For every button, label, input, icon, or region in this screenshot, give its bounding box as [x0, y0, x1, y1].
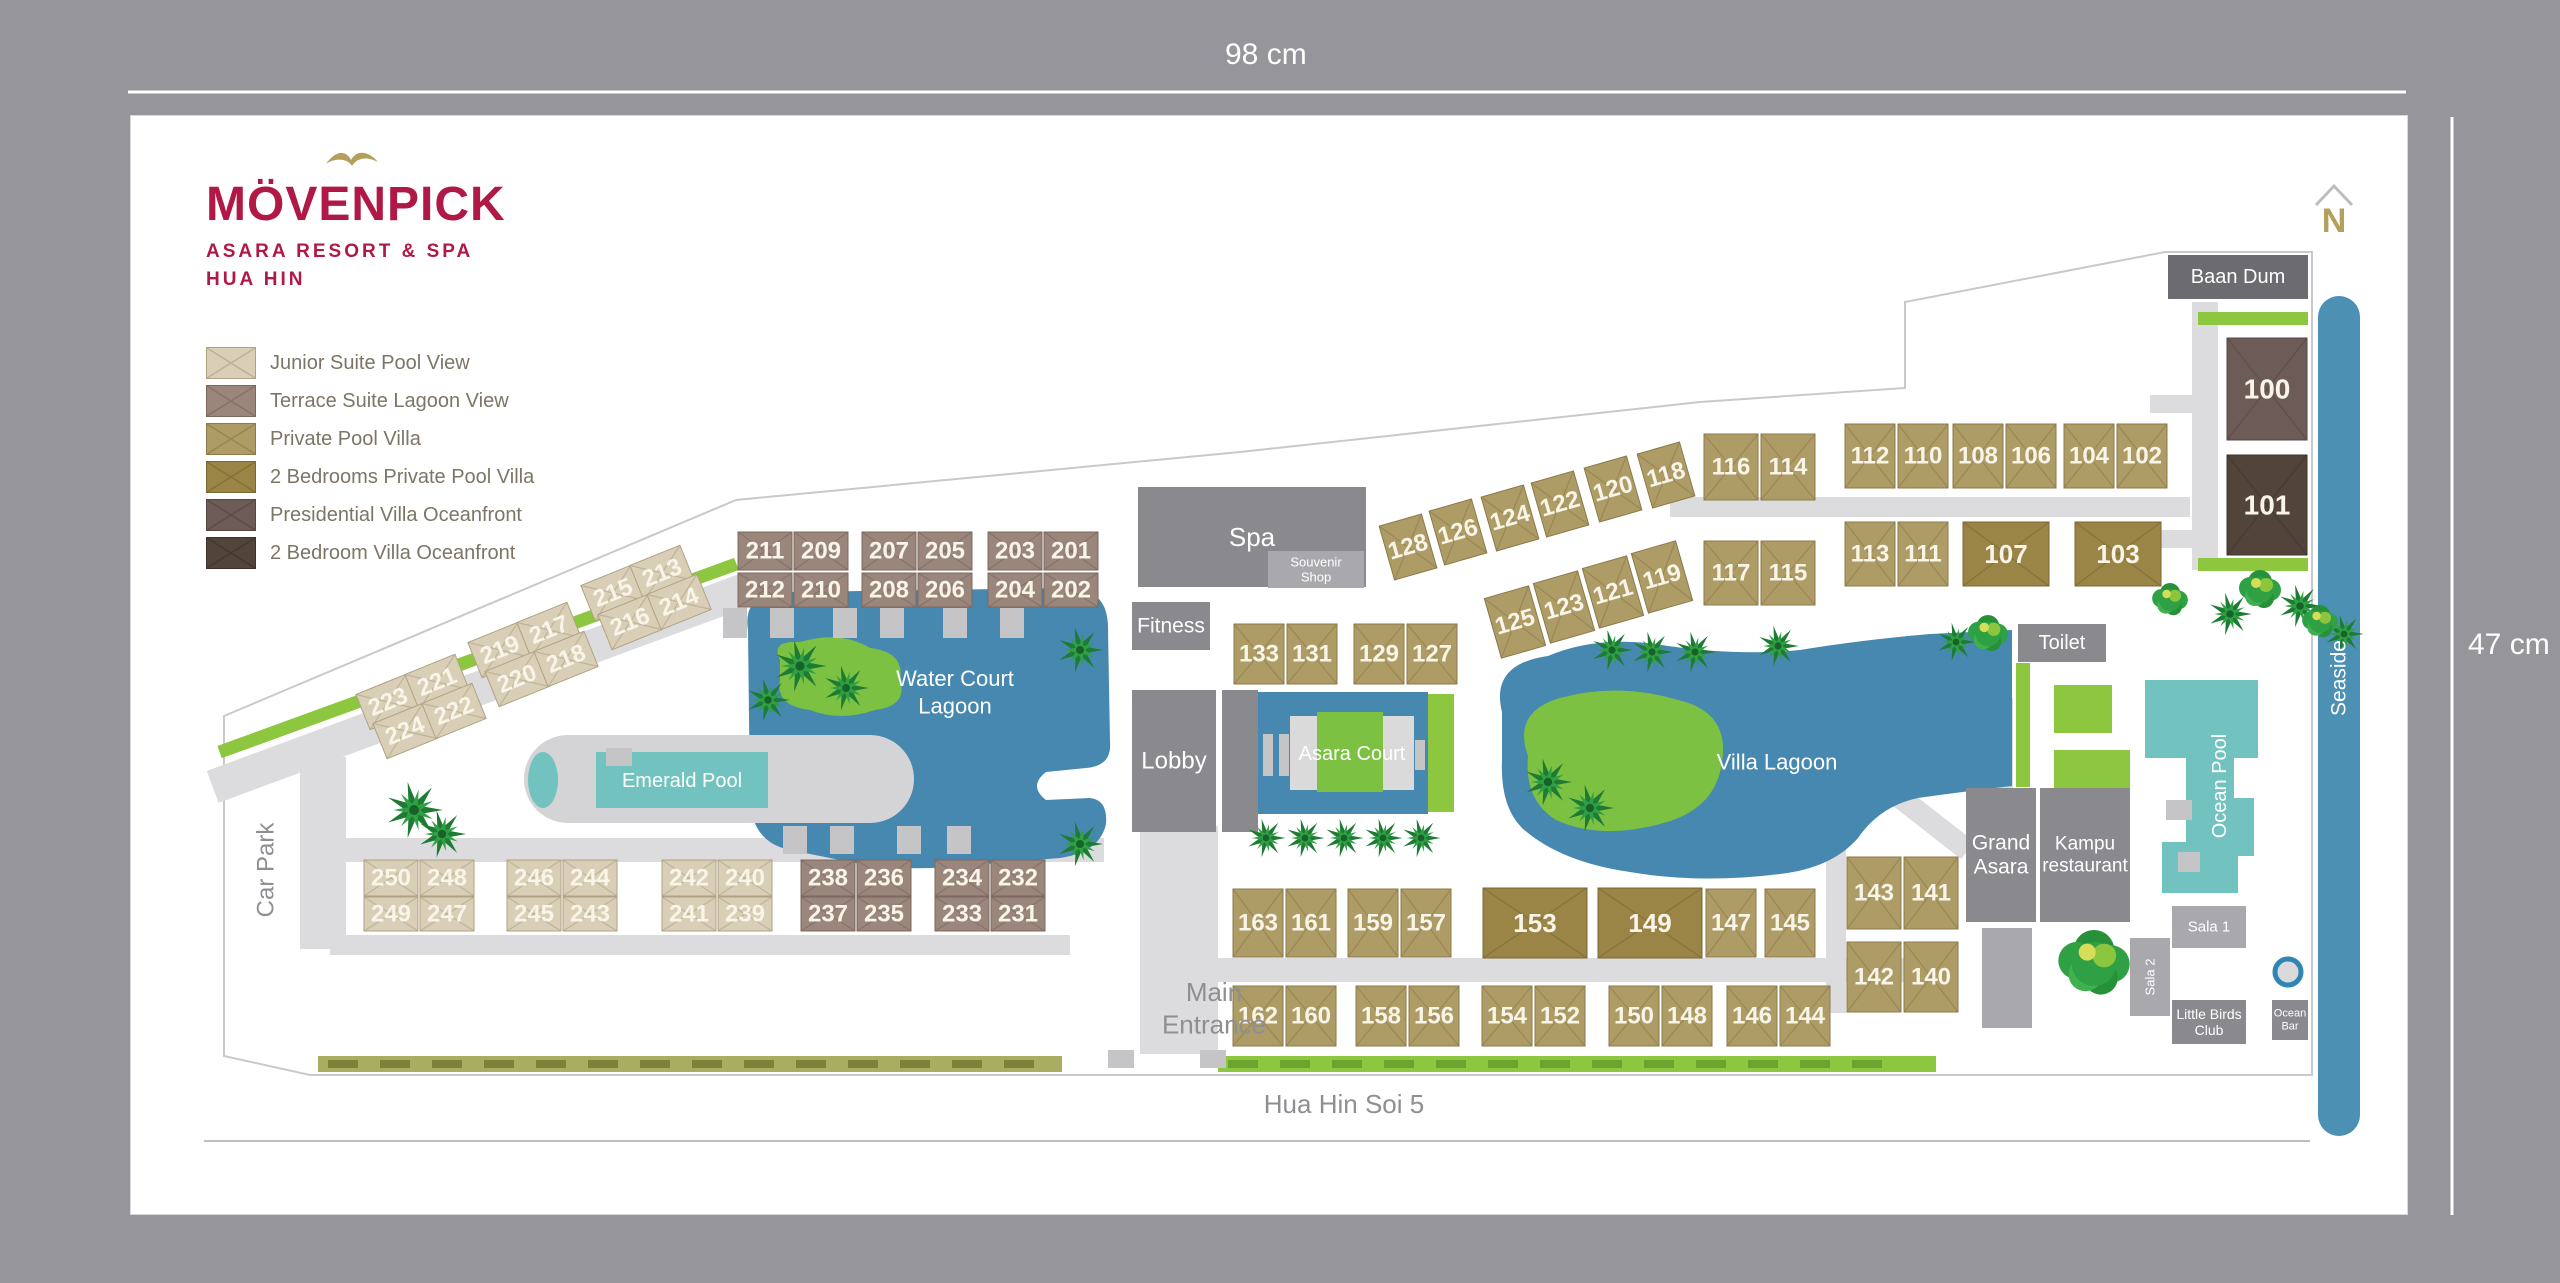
room-158: 158 [1356, 986, 1406, 1046]
room-237: 237 [801, 897, 855, 931]
svg-text:Grand: Grand [1972, 831, 2030, 854]
svg-text:148: 148 [1667, 1003, 1707, 1030]
svg-text:100: 100 [2244, 374, 2291, 405]
room-129: 129 [1354, 624, 1404, 684]
svg-text:112: 112 [1851, 443, 1890, 470]
room-246: 246 [507, 860, 561, 896]
svg-text:Ocean: Ocean [2274, 1008, 2306, 1020]
room-100: 100 [2227, 338, 2307, 440]
svg-text:244: 244 [570, 865, 611, 892]
legend-swatch-icon [206, 499, 256, 531]
svg-text:202: 202 [1051, 577, 1091, 604]
room-144: 144 [1780, 986, 1830, 1046]
pier [606, 748, 632, 766]
compass-north: N [2316, 186, 2352, 240]
lawn [2054, 685, 2112, 733]
asara-court-label: Asara Court [1299, 743, 1406, 765]
svg-text:140: 140 [1911, 964, 1951, 991]
svg-text:103: 103 [2096, 539, 2139, 569]
walkway [2150, 395, 2194, 413]
room-124: 124 [1481, 485, 1539, 551]
movenpick-logo: MÖVENPICK ASARA RESORT & SPA HUA HIN [206, 148, 506, 291]
room-160: 160 [1286, 986, 1336, 1046]
room-147: 147 [1706, 889, 1756, 957]
legend-swatch-icon [206, 385, 256, 417]
room-118: 118 [1637, 442, 1695, 508]
legend-item: Presidential Villa Oceanfront [206, 500, 534, 530]
svg-text:149: 149 [1628, 908, 1671, 938]
room-207: 207 [862, 532, 916, 570]
svg-text:142: 142 [1854, 964, 1894, 991]
building-little-birds-club: Little BirdsClub [2172, 1000, 2246, 1044]
svg-text:108: 108 [1958, 443, 1998, 470]
svg-text:127: 127 [1412, 641, 1452, 668]
pier [1200, 1050, 1226, 1068]
legend-swatch-icon [206, 461, 256, 493]
svg-text:Hua Hin Soi 5: Hua Hin Soi 5 [1264, 1089, 1424, 1119]
svg-text:Emerald Pool: Emerald Pool [622, 770, 742, 792]
svg-text:147: 147 [1711, 910, 1751, 937]
svg-text:245: 245 [514, 901, 554, 928]
svg-text:129: 129 [1359, 641, 1399, 668]
svg-text:Lobby: Lobby [1141, 748, 1206, 775]
room-234: 234 [935, 860, 989, 896]
svg-text:Sala 2: Sala 2 [2143, 959, 2158, 996]
svg-text:249: 249 [371, 901, 411, 928]
room-163: 163 [1233, 889, 1283, 957]
lawn [2198, 312, 2308, 325]
svg-text:247: 247 [427, 901, 467, 928]
room-201: 201 [1044, 532, 1098, 570]
svg-text:206: 206 [925, 577, 965, 604]
lawn [1428, 694, 1454, 812]
room-125: 125 [1484, 586, 1545, 658]
room-152: 152 [1535, 986, 1585, 1046]
svg-text:207: 207 [869, 538, 909, 565]
room-149: 149 [1598, 888, 1702, 958]
svg-text:Ocean Pool: Ocean Pool [2209, 734, 2231, 839]
svg-text:236: 236 [864, 865, 904, 892]
svg-text:104: 104 [2069, 443, 2110, 470]
svg-text:212: 212 [745, 577, 785, 604]
svg-text:Seaside: Seaside [2328, 640, 2351, 716]
palm-tree-icon [1365, 819, 1402, 857]
seagull-icon [324, 148, 380, 174]
room-145: 145 [1765, 889, 1815, 957]
round-tree-icon [2058, 930, 2129, 995]
svg-text:160: 160 [1291, 1003, 1331, 1030]
svg-text:111: 111 [1904, 541, 1941, 568]
svg-text:Car Park: Car Park [253, 822, 280, 918]
room-126: 126 [1429, 499, 1487, 565]
svg-text:204: 204 [995, 577, 1036, 604]
svg-text:restaurant: restaurant [2042, 855, 2128, 876]
room-248: 248 [420, 860, 474, 896]
svg-text:117: 117 [1712, 560, 1751, 587]
room-239: 239 [718, 897, 772, 931]
svg-text:161: 161 [1291, 910, 1331, 937]
legend-label: Terrace Suite Lagoon View [270, 390, 509, 413]
legend-item: Private Pool Villa [206, 424, 534, 454]
svg-text:106: 106 [2011, 443, 2051, 470]
room-131: 131 [1287, 624, 1337, 684]
room-235: 235 [857, 897, 911, 931]
svg-text:Asara: Asara [1974, 856, 2029, 879]
svg-text:Water Court: Water Court [896, 666, 1014, 691]
svg-text:238: 238 [808, 865, 848, 892]
svg-text:115: 115 [1769, 560, 1808, 587]
height-dimension-label: 47 cm [2468, 628, 2550, 662]
room-103: 103 [2075, 522, 2161, 586]
svg-text:Lagoon: Lagoon [918, 693, 991, 718]
room-110: 110 [1898, 424, 1948, 488]
svg-text:232: 232 [998, 865, 1038, 892]
building-baan-dum: Baan Dum [2168, 255, 2308, 299]
room-143: 143 [1847, 857, 1901, 929]
building-grand-asara: GrandAsara [1966, 788, 2036, 922]
svg-text:158: 158 [1361, 1003, 1401, 1030]
resort-map-page: { "page":{"bg":"#95959B","canvas_bg":"#F… [0, 0, 2560, 1283]
room-154: 154 [1482, 986, 1532, 1046]
room-205: 205 [918, 532, 972, 570]
room-209: 209 [794, 532, 848, 570]
legend-item: Junior Suite Pool View [206, 348, 534, 378]
palm-tree-icon [1287, 819, 1324, 857]
emerald-pool-label: Emerald Pool [622, 770, 742, 792]
room-102: 102 [2117, 424, 2167, 488]
svg-text:Baan Dum: Baan Dum [2191, 266, 2286, 288]
svg-text:Main: Main [1186, 977, 1242, 1007]
pier [723, 608, 747, 638]
svg-text:131: 131 [1292, 641, 1332, 668]
svg-text:242: 242 [669, 865, 709, 892]
building-lobby: Lobby [1132, 690, 1216, 832]
room-161: 161 [1286, 889, 1336, 957]
svg-text:Asara Court: Asara Court [1299, 743, 1406, 765]
svg-text:102: 102 [2122, 443, 2162, 470]
room-116: 116 [1704, 434, 1758, 500]
pier [833, 608, 857, 638]
round-tree-icon [2152, 583, 2188, 615]
room-113: 113 [1845, 522, 1895, 586]
lawn [2198, 558, 2308, 571]
svg-text:Souvenir: Souvenir [1290, 555, 1342, 570]
villa-lagoon-label: Villa Lagoon [1717, 750, 1838, 775]
room-120: 120 [1584, 456, 1642, 522]
pier [2178, 852, 2200, 872]
svg-text:Sala 1: Sala 1 [2188, 919, 2231, 936]
room-112: 112 [1845, 424, 1895, 488]
room-247: 247 [420, 897, 474, 931]
room-240: 240 [718, 860, 772, 896]
room-233: 233 [935, 897, 989, 931]
street-label: Hua Hin Soi 5 [1264, 1089, 1424, 1119]
svg-text:210: 210 [801, 577, 841, 604]
pier [1000, 608, 1024, 638]
brand-subtitle: ASARA RESORT & SPA [206, 241, 506, 263]
ocean-pool [2145, 680, 2258, 893]
svg-text:116: 116 [1712, 454, 1751, 481]
svg-text:246: 246 [514, 865, 554, 892]
svg-text:233: 233 [942, 901, 982, 928]
room-212: 212 [738, 573, 792, 607]
pier [1279, 734, 1289, 776]
pier [947, 826, 971, 854]
palm-tree-icon [1403, 819, 1440, 857]
room-208: 208 [862, 573, 916, 607]
building-sala-1: Sala 1 [2172, 906, 2246, 948]
room-211: 211 [738, 532, 792, 570]
svg-text:241: 241 [669, 901, 709, 928]
pier [1415, 740, 1425, 770]
brand-city: HUA HIN [206, 269, 506, 291]
svg-text:133: 133 [1239, 641, 1279, 668]
pier [783, 826, 807, 854]
svg-text:107: 107 [1984, 539, 2027, 569]
pier [943, 608, 967, 638]
room-250: 250 [364, 860, 418, 896]
svg-text:101: 101 [2244, 490, 2291, 521]
svg-text:Villa Lagoon: Villa Lagoon [1717, 750, 1838, 775]
svg-text:211: 211 [746, 538, 785, 565]
svg-text:239: 239 [725, 901, 765, 928]
room-210: 210 [794, 573, 848, 607]
room-119: 119 [1631, 541, 1692, 613]
building-kampu-restaurant: Kampurestaurant [2040, 788, 2130, 922]
svg-text:143: 143 [1854, 880, 1894, 907]
room-114: 114 [1761, 434, 1815, 500]
svg-text:201: 201 [1051, 538, 1091, 565]
svg-text:Shop: Shop [1301, 569, 1331, 584]
svg-text:231: 231 [998, 901, 1038, 928]
legend-label: Junior Suite Pool View [270, 352, 470, 375]
svg-text:110: 110 [1904, 443, 1943, 470]
room-203: 203 [988, 532, 1042, 570]
room-106: 106 [2006, 424, 2056, 488]
building-service-building [1982, 928, 2032, 1028]
brand-title: MÖVENPICK [206, 181, 506, 229]
svg-text:248: 248 [427, 865, 467, 892]
room-238: 238 [801, 860, 855, 896]
pier [830, 826, 854, 854]
room-249: 249 [364, 897, 418, 931]
building-ocean-bar: OceanBar [2272, 1000, 2308, 1040]
hot-tub [2275, 959, 2301, 985]
svg-text:208: 208 [869, 577, 909, 604]
width-dimension-label: 98 cm [1225, 38, 1307, 72]
pier [897, 826, 921, 854]
room-101: 101 [2227, 455, 2307, 555]
svg-text:Little Birds: Little Birds [2176, 1006, 2241, 1022]
building-fitness: Fitness [1132, 602, 1210, 650]
room-202: 202 [1044, 573, 1098, 607]
pier [1263, 734, 1273, 776]
room-111: 111 [1898, 522, 1948, 586]
room-153: 153 [1483, 888, 1587, 958]
walkway [1210, 958, 1918, 982]
room-231: 231 [991, 897, 1045, 931]
svg-text:209: 209 [801, 538, 841, 565]
room-104: 104 [2064, 424, 2114, 488]
svg-text:Kampu: Kampu [2055, 834, 2115, 855]
legend-item: 2 Bedroom Villa Oceanfront [206, 538, 534, 568]
legend-item: Terrace Suite Lagoon View [206, 386, 534, 416]
room-133: 133 [1234, 624, 1284, 684]
room-121: 121 [1582, 556, 1643, 628]
round-tree-icon [2239, 570, 2281, 608]
svg-text:205: 205 [925, 538, 965, 565]
room-150: 150 [1609, 986, 1659, 1046]
legend-label: 2 Bedrooms Private Pool Villa [270, 466, 534, 489]
seaside-label: Seaside [2328, 640, 2351, 716]
emerald-spa-tub [528, 752, 558, 808]
room-243: 243 [563, 897, 617, 931]
car-park-label: Car Park [253, 822, 280, 918]
room-242: 242 [662, 860, 716, 896]
room-142: 142 [1847, 942, 1901, 1012]
svg-text:234: 234 [942, 865, 983, 892]
legend-item: 2 Bedrooms Private Pool Villa [206, 462, 534, 492]
building-sala-2: Sala 2 [2130, 938, 2170, 1016]
room-236: 236 [857, 860, 911, 896]
room-146: 146 [1727, 986, 1777, 1046]
ocean-pool-label: Ocean Pool [2209, 734, 2231, 839]
svg-text:Bar: Bar [2281, 1020, 2298, 1032]
pier [2166, 800, 2192, 820]
room-241: 241 [662, 897, 716, 931]
room-244: 244 [563, 860, 617, 896]
svg-text:153: 153 [1513, 908, 1556, 938]
pier [880, 608, 904, 638]
room-107: 107 [1963, 522, 2049, 586]
svg-text:235: 235 [864, 901, 904, 928]
legend-label: Presidential Villa Oceanfront [270, 504, 522, 527]
svg-text:N: N [2322, 202, 2347, 240]
svg-text:113: 113 [1851, 541, 1890, 568]
svg-text:159: 159 [1353, 910, 1393, 937]
walkway [2192, 302, 2218, 570]
legend-label: Private Pool Villa [270, 428, 421, 451]
room-159: 159 [1348, 889, 1398, 957]
svg-text:243: 243 [570, 901, 610, 928]
svg-text:157: 157 [1406, 910, 1446, 937]
svg-text:150: 150 [1614, 1003, 1654, 1030]
svg-text:156: 156 [1414, 1003, 1454, 1030]
svg-text:Toilet: Toilet [2039, 632, 2086, 654]
legend-swatch-icon [206, 537, 256, 569]
room-245: 245 [507, 897, 561, 931]
svg-text:Fitness: Fitness [1137, 615, 1205, 638]
svg-text:141: 141 [1911, 880, 1951, 907]
hedge [318, 1056, 1062, 1072]
svg-text:203: 203 [995, 538, 1035, 565]
svg-text:145: 145 [1770, 910, 1810, 937]
svg-text:152: 152 [1540, 1003, 1580, 1030]
svg-text:114: 114 [1769, 454, 1808, 481]
pier [1108, 1050, 1134, 1068]
building-toilet: Toilet [2018, 624, 2106, 662]
pier [770, 608, 794, 638]
legend-label: 2 Bedroom Villa Oceanfront [270, 542, 515, 565]
room-115: 115 [1761, 541, 1815, 605]
svg-text:163: 163 [1238, 910, 1278, 937]
room-232: 232 [991, 860, 1045, 896]
room-206: 206 [918, 573, 972, 607]
walkway [330, 935, 1070, 955]
room-148: 148 [1662, 986, 1712, 1046]
lawn [2016, 663, 2030, 787]
room-type-legend: Junior Suite Pool View Terrace Suite Lag… [206, 348, 534, 576]
room-108: 108 [1953, 424, 2003, 488]
room-117: 117 [1704, 541, 1758, 605]
lawn [2054, 750, 2130, 788]
room-140: 140 [1904, 942, 1958, 1012]
building-lobby-annex [1222, 690, 1258, 832]
room-157: 157 [1401, 889, 1451, 957]
svg-text:Spa: Spa [1229, 522, 1276, 552]
svg-text:237: 237 [808, 901, 848, 928]
svg-text:146: 146 [1732, 1003, 1772, 1030]
svg-text:Entrance: Entrance [1162, 1009, 1266, 1039]
palm-tree-icon [1326, 819, 1363, 857]
svg-text:Club: Club [2195, 1022, 2224, 1038]
building-souvenir-shop: SouvenirShop [1268, 551, 1364, 588]
room-123: 123 [1533, 571, 1594, 643]
room-127: 127 [1407, 624, 1457, 684]
legend-swatch-icon [206, 347, 256, 379]
room-128: 128 [1379, 514, 1437, 580]
svg-text:154: 154 [1487, 1003, 1528, 1030]
svg-text:250: 250 [371, 865, 411, 892]
svg-text:144: 144 [1785, 1003, 1826, 1030]
room-156: 156 [1409, 986, 1459, 1046]
legend-swatch-icon [206, 423, 256, 455]
room-204: 204 [988, 573, 1042, 607]
room-122: 122 [1531, 471, 1589, 537]
room-141: 141 [1904, 857, 1958, 929]
svg-text:240: 240 [725, 865, 765, 892]
